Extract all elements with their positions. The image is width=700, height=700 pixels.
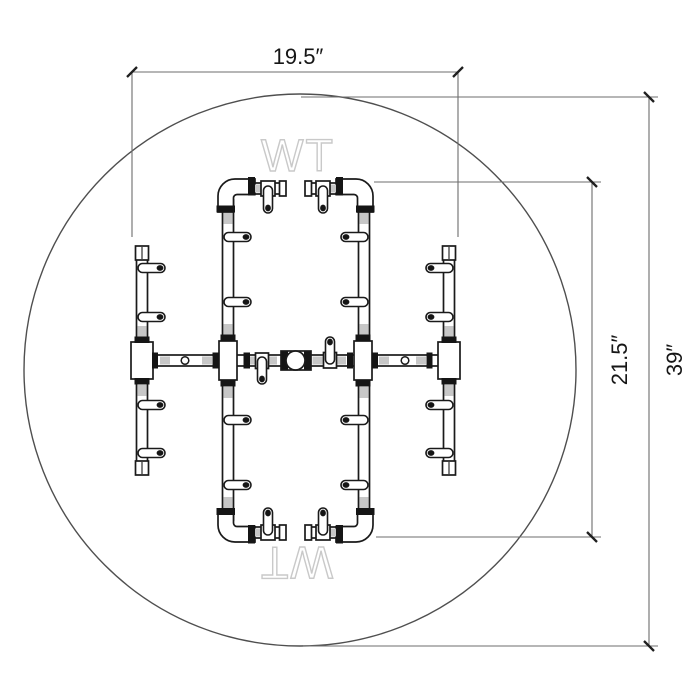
gas-inlet-hub [281, 351, 311, 370]
burner-jet [426, 449, 453, 458]
burner-jet [224, 481, 251, 490]
burner-jet [138, 313, 165, 322]
watermark-top: WT [261, 130, 335, 181]
burner-jet [138, 449, 165, 458]
cross-fitting [219, 341, 237, 380]
burner-jet [224, 416, 251, 425]
burner-jet [341, 233, 368, 242]
tee-fitting [438, 342, 460, 379]
burner-jet [426, 401, 453, 410]
burner-jet [264, 508, 273, 535]
hub-inlet-circle [286, 351, 305, 370]
burner-jet [341, 298, 368, 307]
end-cap [305, 525, 312, 540]
burner-technical-drawing: WT WT [0, 0, 700, 700]
burner-jet [326, 337, 335, 364]
burner-assembly [131, 177, 460, 544]
end-cap [280, 525, 287, 540]
cross-fitting [354, 341, 372, 380]
dimension-label-diameter: 39″ [662, 344, 687, 376]
burner-jet [258, 357, 267, 384]
orifice-hole [401, 357, 409, 365]
burner-jet [426, 313, 453, 322]
burner-jet [224, 298, 251, 307]
burner-jet [138, 401, 165, 410]
burner-jet [319, 186, 328, 213]
dimension-label-height: 21.5″ [607, 334, 632, 385]
burner-jet [138, 264, 165, 273]
burner-jet [341, 481, 368, 490]
end-cap [280, 181, 287, 196]
burner-jet [224, 233, 251, 242]
dimension-label-width: 19.5″ [273, 44, 324, 69]
drawing-canvas: WT WT [0, 0, 700, 700]
burner-jet [264, 186, 273, 213]
burner-jet [341, 416, 368, 425]
tee-fitting [131, 342, 153, 379]
end-cap [305, 181, 312, 196]
burner-jet [319, 508, 328, 535]
watermark-bottom: WT [259, 537, 333, 588]
orifice-hole [181, 357, 189, 365]
burner-jet [426, 264, 453, 273]
